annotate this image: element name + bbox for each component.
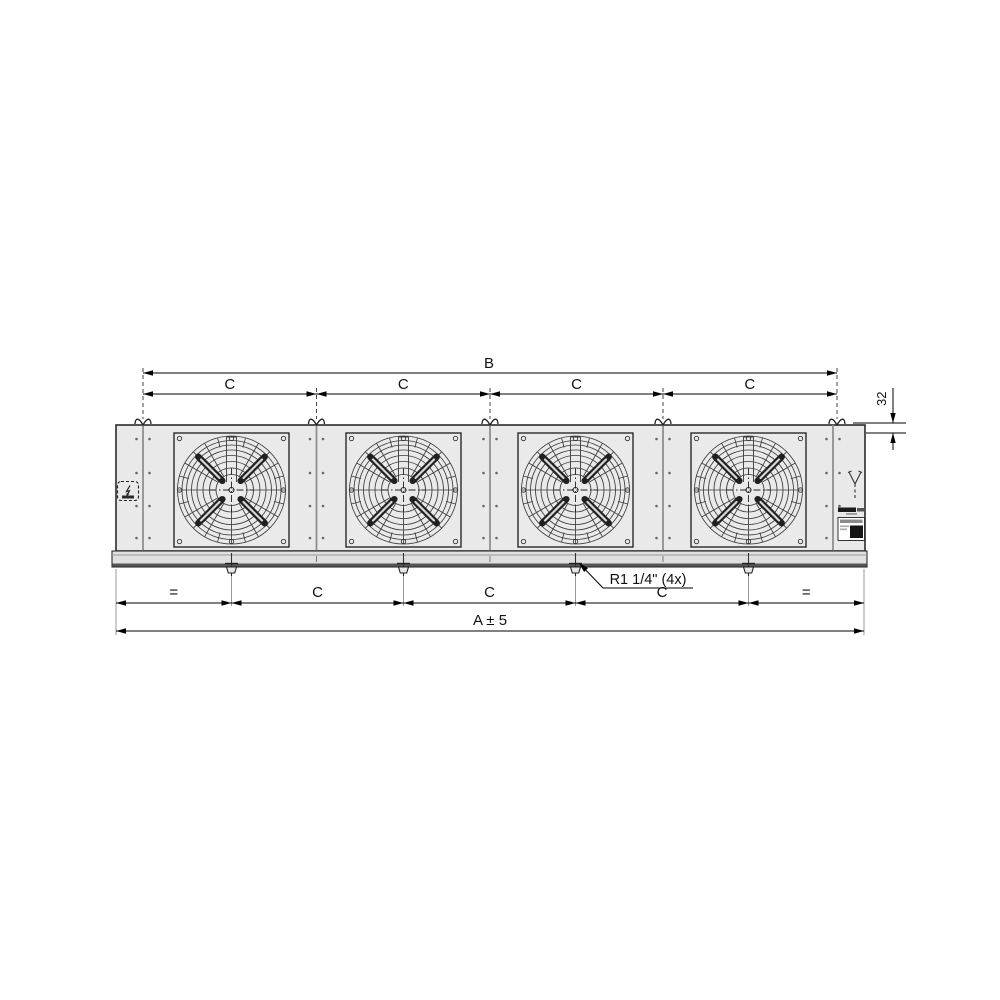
dim-label-c1: C [224,376,235,393]
hanger-bracket-icon [309,419,325,425]
dim-label-eq-right: = [802,584,811,601]
drain-note-label: R1 1/4" (4x) [610,572,687,588]
dim-label-c2: C [398,376,409,393]
fan-4 [691,433,806,547]
dim-label-c-b1: C [312,584,323,601]
fan-3 [518,433,633,547]
dimension-b: B [143,355,837,376]
fan-1 [174,433,289,547]
rating-plate [838,518,865,541]
dimension-bottom-chain: = C C C = [116,584,864,606]
dim-label-c4: C [744,376,755,393]
hanger-bracket-icon [482,419,498,425]
dim-label-b: B [484,355,494,372]
dim-label-c3: C [571,376,582,393]
dim-label-eq-left: = [169,584,178,601]
dimension-a: A ± 5 [116,612,864,634]
dim-label-c-b2: C [484,584,495,601]
drip-tray [112,551,867,567]
technical-drawing: B C C C C 32 [0,0,1000,1000]
dim-label-a: A ± 5 [473,612,507,629]
dimension-c-top: C C C C [143,376,837,397]
hanger-bracket-icon [655,419,671,425]
hanger-bracket-icon [829,419,845,425]
hanger-brackets [135,419,845,425]
hanger-bracket-icon [135,419,151,425]
fan-2 [346,433,461,547]
drawing-canvas: B C C C C 32 [0,0,1000,1000]
dim-label-32: 32 [874,392,889,406]
